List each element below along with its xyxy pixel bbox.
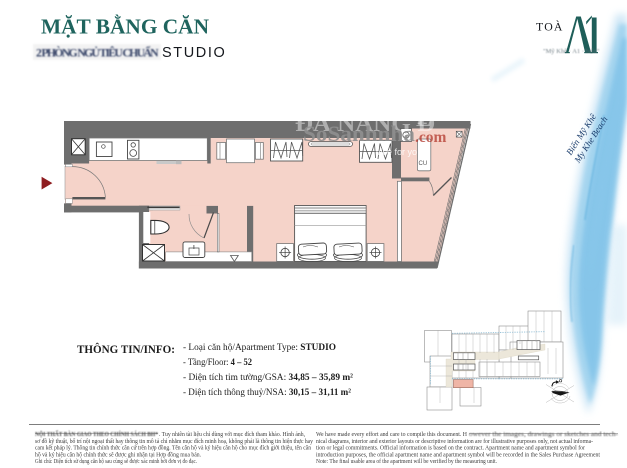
- svg-text:nical diagrams, interior and e: nical diagrams, interior and exterior la…: [316, 438, 593, 445]
- svg-text:THÔNG TIN/INFO:: THÔNG TIN/INFO:: [77, 342, 175, 356]
- svg-text:NỘI THẤT BÀN GIAO THEO CHÍNH S: NỘI THẤT BÀN GIAO THEO CHÍNH SÁCH BH*: [35, 430, 158, 438]
- svg-text:"Mỹ Khê · A1 · biển": "Mỹ Khê · A1 · biển": [543, 48, 600, 55]
- svg-text:hộ và ký hiệu căn hộ chính thứ: hộ và ký hiệu căn hộ chính thức sẽ được …: [35, 451, 201, 458]
- svg-text:tion or legal commitments. Off: tion or legal commitments. Official info…: [316, 445, 585, 452]
- svg-text:vice for yo: vice for yo: [376, 147, 417, 157]
- svg-text:MẶT BẰNG CĂN: MẶT BẰNG CĂN: [41, 15, 209, 39]
- svg-text:sơ đồ kỹ thuật, bố trí nội ngo: sơ đồ kỹ thuật, bố trí nội ngoại thất ha…: [35, 438, 314, 445]
- svg-text:We have made every effort and: We have made every effort and care to co…: [316, 431, 468, 438]
- svg-text:cam kết pháp lý. Thông tin chí: cam kết pháp lý. Thông tin chính thức că…: [35, 445, 311, 452]
- svg-text:introduction purposes, the off: introduction purposes, the official apar…: [316, 451, 600, 458]
- svg-text:owever the images, drawings or: owever the images, drawings or sketches …: [469, 432, 618, 438]
- svg-text:CU: CU: [419, 161, 428, 167]
- svg-text:- Loại căn hộ/Apartment Type:: - Loại căn hộ/Apartment Type: STUDIO: [183, 342, 336, 353]
- svg-text:.com: .com: [415, 129, 447, 146]
- svg-text:- Diện tích thông thuỷ/NSA: 30: - Diện tích thông thuỷ/NSA: 30,15 – 31,1…: [183, 387, 351, 398]
- svg-text:2 PHÒNG NGỦ TIÊU CHUẨN: 2 PHÒNG NGỦ TIÊU CHUẨN: [36, 45, 159, 60]
- svg-text:L: L: [416, 106, 431, 131]
- svg-text:Ghi chú: Diện tích sử dụng căn: Ghi chú: Diện tích sử dụng căn hộ sau cù…: [35, 459, 197, 465]
- svg-text:. Tuy nhiên tài liệu chỉ dùng: . Tuy nhiên tài liệu chỉ dùng với mục đí…: [159, 432, 305, 438]
- svg-text:TOÀ: TOÀ: [536, 20, 564, 34]
- svg-text:STUDIO: STUDIO: [162, 45, 226, 61]
- svg-text:SoSanhnha: SoSanhnha: [303, 121, 415, 146]
- svg-text:- Tầng/Floor: 4 – 52: - Tầng/Floor: 4 – 52: [183, 357, 252, 368]
- svg-text:- Diện tích tim tường/GSA: 34,: - Diện tích tim tường/GSA: 34,85 – 35,89…: [183, 372, 353, 383]
- svg-text:Note: The final usable area of: Note: The final usable area of the apart…: [316, 458, 497, 465]
